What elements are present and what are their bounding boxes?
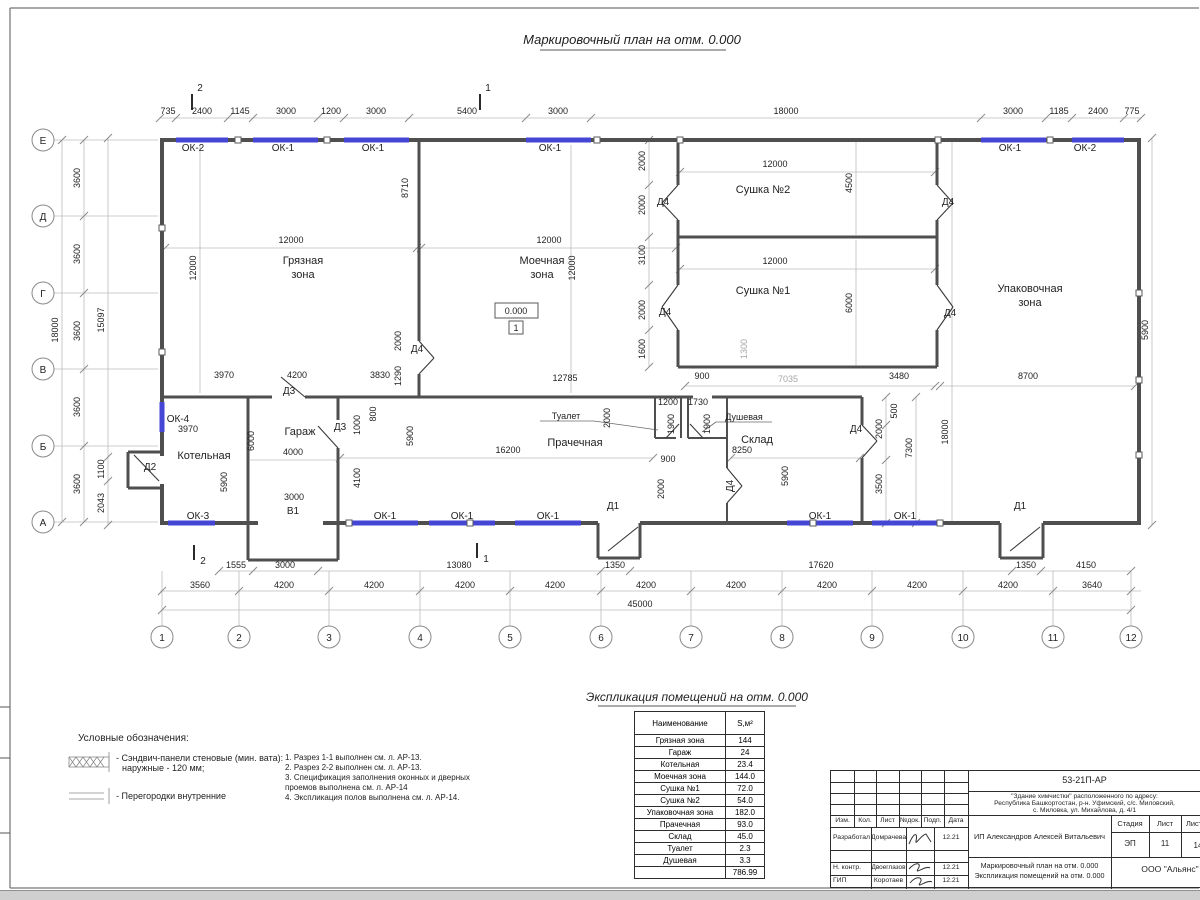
svg-text:4200: 4200	[455, 580, 475, 590]
partition-swatch	[69, 788, 109, 804]
svg-text:1: 1	[513, 323, 518, 333]
svg-text:В1: В1	[287, 506, 300, 517]
svg-text:Д3: Д3	[283, 386, 296, 397]
svg-text:5400: 5400	[457, 106, 477, 116]
svg-text:Г: Г	[40, 289, 46, 300]
project-code: 53-21П-АР	[968, 775, 1200, 785]
svg-text:15097: 15097	[96, 307, 106, 332]
table-row: Туалет2.3	[635, 843, 765, 855]
svg-text:2000: 2000	[874, 419, 884, 439]
svg-text:5900: 5900	[1140, 320, 1150, 340]
svg-text:1000: 1000	[352, 415, 362, 435]
svg-text:1145: 1145	[230, 106, 249, 116]
svg-text:Д3: Д3	[334, 422, 347, 433]
svg-text:4200: 4200	[907, 580, 927, 590]
svg-text:2043: 2043	[96, 493, 106, 513]
svg-text:16200: 16200	[495, 445, 520, 455]
svg-text:500: 500	[889, 403, 899, 418]
org-name: ООО "Альянс"	[1111, 864, 1200, 874]
section-1-bottom: 1	[483, 554, 489, 565]
svg-text:12: 12	[1125, 633, 1137, 644]
svg-text:1555: 1555	[226, 560, 246, 570]
svg-text:1185: 1185	[1049, 106, 1068, 116]
svg-text:3600: 3600	[72, 244, 82, 264]
project-address-2: Республика Башкортостан, р-н. Уфимский, …	[971, 800, 1198, 807]
svg-text:1. Разрез 1-1 выполнен см. л.: 1. Разрез 1-1 выполнен см. л. АР-13.	[285, 753, 422, 762]
svg-text:3970: 3970	[214, 370, 234, 380]
svg-text:17620: 17620	[808, 560, 833, 570]
svg-text:ОК-1: ОК-1	[537, 511, 560, 522]
svg-text:3: 3	[326, 633, 332, 644]
table-row: Грязная зона144	[635, 735, 765, 747]
room-shower: Душевая	[725, 412, 763, 422]
svg-text:3830: 3830	[370, 370, 390, 380]
section-2-bottom: 2	[200, 556, 206, 567]
svg-text:Д2: Д2	[144, 462, 157, 473]
svg-text:3600: 3600	[72, 168, 82, 188]
svg-text:2000: 2000	[637, 300, 647, 320]
svg-text:1900: 1900	[666, 414, 676, 434]
svg-text:5900: 5900	[405, 426, 415, 446]
table-row: Моечная зона144.0	[635, 771, 765, 783]
table-row: Упаковочная зона182.0	[635, 807, 765, 819]
dims-bottom: 1555 3000 13080 1350 17620 1350 4150 356…	[190, 560, 1102, 609]
table-row: Сушка №172.0	[635, 783, 765, 795]
svg-text:4. Экспликация полов выполнена: 4. Экспликация полов выполнена см. л. АР…	[285, 793, 459, 802]
exterior-walls	[160, 138, 1141, 525]
svg-text:9: 9	[869, 633, 875, 644]
project-address-3: с. Миловка, ул. Михайлова, д. 4/1	[971, 807, 1198, 814]
name-ncontrol: Двоеглазов	[871, 864, 906, 871]
svg-text:0.000: 0.000	[505, 306, 528, 316]
signature-2	[906, 859, 934, 889]
svg-text:12000: 12000	[567, 255, 577, 280]
svg-text:8: 8	[779, 633, 785, 644]
room-boiler: Котельная	[177, 450, 230, 462]
svg-text:18000: 18000	[773, 106, 798, 116]
svg-text:10: 10	[957, 633, 969, 644]
drawing-sheet: Маркировочный план на отм. 0.000	[0, 0, 1200, 900]
svg-text:3600: 3600	[72, 397, 82, 417]
room-wash-zone: Моечная	[519, 255, 564, 267]
svg-text:ОК-1: ОК-1	[999, 143, 1022, 154]
svg-text:12000: 12000	[536, 235, 561, 245]
window-label-ok4: ОК-4	[167, 414, 190, 425]
svg-text:1730: 1730	[688, 397, 708, 407]
svg-text:А: А	[40, 518, 47, 529]
signature-1	[906, 829, 934, 849]
svg-text:Д4: Д4	[657, 197, 670, 208]
svg-text:3600: 3600	[72, 321, 82, 341]
svg-text:2: 2	[236, 633, 242, 644]
svg-text:4200: 4200	[287, 370, 307, 380]
svg-text:775: 775	[1124, 106, 1139, 116]
svg-text:- Сэндвич-панели стеновые (мин: - Сэндвич-панели стеновые (мин. вата):	[116, 753, 283, 763]
svg-text:7: 7	[688, 633, 694, 644]
svg-text:наружные - 120 мм;: наружные - 120 мм;	[122, 763, 204, 773]
svg-text:1200: 1200	[321, 106, 341, 116]
svg-text:4200: 4200	[545, 580, 565, 590]
svg-text:3000: 3000	[276, 106, 296, 116]
doc-title-1: Маркировочный план на отм. 0.000	[968, 861, 1111, 870]
project-address-1: "Здание химчистки" расположенного по адр…	[971, 793, 1198, 800]
svg-text:Д: Д	[40, 212, 47, 223]
svg-text:4000: 4000	[283, 447, 303, 457]
room-packing-zone: Упаковочная	[997, 283, 1062, 295]
room-laundry: Прачечная	[547, 437, 602, 449]
section-2-top: 2	[197, 83, 203, 94]
explication-table: Наименование S,м² Грязная зона144 Гараж2…	[634, 711, 765, 879]
room-dirty-zone: Грязная	[283, 255, 324, 267]
svg-text:8250: 8250	[732, 445, 752, 455]
svg-text:1900: 1900	[702, 414, 712, 434]
door-labels: Д4 Д4 Д4 Д4 Д4 Д4 Д4 Д3 Д3 Д2 Д1 Д1 В1	[144, 197, 1027, 517]
svg-text:Д1: Д1	[607, 501, 620, 512]
svg-text:6: 6	[598, 633, 604, 644]
svg-text:8700: 8700	[1018, 371, 1038, 381]
svg-text:4200: 4200	[274, 580, 294, 590]
room-garage: Гараж	[284, 426, 316, 438]
svg-text:800: 800	[368, 406, 378, 421]
svg-text:5900: 5900	[219, 472, 229, 492]
col-header-name: Наименование	[635, 712, 726, 735]
svg-text:3000: 3000	[366, 106, 386, 116]
room-storage: Склад	[741, 434, 773, 446]
svg-text:ОК-1: ОК-1	[894, 511, 917, 522]
svg-text:ОК-2: ОК-2	[1074, 143, 1097, 154]
svg-text:1100: 1100	[96, 459, 106, 478]
role-gip: ГИП	[833, 877, 846, 884]
svg-text:1290: 1290	[393, 366, 403, 386]
svg-text:3000: 3000	[548, 106, 568, 116]
svg-text:4200: 4200	[726, 580, 746, 590]
room-drying-2: Сушка №2	[736, 184, 790, 196]
svg-text:Б: Б	[40, 442, 47, 453]
svg-text:3000: 3000	[1003, 106, 1023, 116]
dim-ticks	[58, 114, 1156, 614]
floor-plan-svg: Маркировочный план на отм. 0.000	[0, 0, 1200, 900]
client-name: ИП Александров Алексей Витальевич	[968, 832, 1111, 841]
sheet-value: 11	[1149, 839, 1181, 848]
svg-text:2000: 2000	[637, 151, 647, 171]
svg-text:2000: 2000	[637, 195, 647, 215]
svg-text:735: 735	[160, 106, 175, 116]
stage-value: ЭП	[1111, 839, 1149, 848]
svg-text:В: В	[40, 365, 47, 376]
svg-text:1350: 1350	[1016, 560, 1036, 570]
svg-text:13080: 13080	[446, 560, 471, 570]
svg-text:3. Спецификация заполнения око: 3. Спецификация заполнения оконных и две…	[285, 773, 470, 782]
svg-text:45000: 45000	[627, 599, 652, 609]
svg-text:4500: 4500	[844, 173, 854, 193]
svg-text:ОК-1: ОК-1	[362, 143, 385, 154]
svg-text:4: 4	[417, 633, 423, 644]
svg-text:Д4: Д4	[411, 344, 424, 355]
table-row: Душевая3.3	[635, 855, 765, 867]
sheets-value: 14	[1181, 841, 1200, 850]
table-total-row: 786.99	[635, 867, 765, 879]
svg-text:7035: 7035	[778, 374, 798, 384]
svg-text:18000: 18000	[50, 317, 60, 342]
axis-bubbles	[32, 129, 1142, 648]
svg-text:1600: 1600	[637, 339, 647, 359]
svg-text:ОК-1: ОК-1	[539, 143, 562, 154]
svg-text:3100: 3100	[637, 245, 647, 265]
svg-text:1: 1	[159, 633, 165, 644]
elevation-mark: 0.000 1	[495, 303, 538, 334]
svg-text:5900: 5900	[780, 466, 790, 486]
svg-text:2000: 2000	[656, 479, 666, 499]
svg-text:11: 11	[1048, 633, 1059, 644]
section-1-top: 1	[485, 83, 491, 94]
svg-text:18000: 18000	[940, 419, 950, 444]
svg-text:6000: 6000	[246, 431, 256, 451]
svg-text:6000: 6000	[844, 293, 854, 313]
legend-title: Условные обозначения:	[78, 732, 189, 744]
svg-text:4200: 4200	[998, 580, 1018, 590]
svg-text:3560: 3560	[190, 580, 210, 590]
svg-text:3500: 3500	[874, 474, 884, 494]
svg-text:12000: 12000	[762, 159, 787, 169]
svg-text:2000: 2000	[602, 408, 612, 428]
svg-text:12000: 12000	[278, 235, 303, 245]
svg-text:2400: 2400	[1088, 106, 1108, 116]
notes: 1. Разрез 1-1 выполнен см. л. АР-13. 2. …	[285, 753, 470, 802]
svg-text:- Перегородки внутренние: - Перегородки внутренние	[116, 791, 226, 801]
svg-text:1350: 1350	[605, 560, 625, 570]
svg-text:ОК-1: ОК-1	[809, 511, 832, 522]
svg-text:4200: 4200	[636, 580, 656, 590]
svg-text:3970: 3970	[178, 424, 198, 434]
window-label-ok2: ОК-2	[182, 143, 205, 154]
svg-text:3600: 3600	[72, 474, 82, 494]
room-toilet: Туалет	[552, 411, 580, 421]
name-gip: Коротаев	[871, 877, 906, 884]
svg-text:2400: 2400	[192, 106, 212, 116]
sandwich-panel-swatch	[69, 752, 109, 772]
svg-text:зона: зона	[1018, 297, 1042, 309]
table-row: Гараж24	[635, 747, 765, 759]
svg-text:Д4: Д4	[942, 197, 955, 208]
svg-text:Д1: Д1	[1014, 501, 1027, 512]
axis-labels: Е Д Г В Б А 1 2 3 4 5 6 7 8 9 10 11 12	[40, 136, 1137, 644]
svg-text:Д4: Д4	[850, 424, 863, 435]
svg-text:зона: зона	[530, 269, 554, 281]
dims-plan: 12000 12000 12000 12000 8710 12000 4500 …	[178, 151, 1038, 502]
role-developed: Разработал	[833, 834, 870, 841]
title-block: 53-21П-АР "Здание химчистки" расположенн…	[830, 770, 1200, 888]
svg-text:2000: 2000	[393, 331, 403, 351]
legend: Условные обозначения: - Сэндвич-панели с…	[69, 732, 283, 804]
svg-text:5: 5	[507, 633, 513, 644]
table-row: Склад45.0	[635, 831, 765, 843]
svg-text:Д4: Д4	[944, 308, 957, 319]
room-drying-1: Сушка №1	[736, 285, 790, 297]
svg-text:4200: 4200	[817, 580, 837, 590]
dims-top: 735 2400 1145 3000 1200 3000 5400 3000 1…	[160, 106, 1139, 116]
svg-text:проемов выполнена см. л. АР-14: проемов выполнена см. л. АР-14	[285, 783, 408, 792]
svg-text:1200: 1200	[658, 397, 678, 407]
svg-text:зона: зона	[291, 269, 315, 281]
column-markers	[159, 137, 1142, 526]
svg-text:4150: 4150	[1076, 560, 1096, 570]
col-header-area: S,м²	[726, 712, 765, 735]
room-labels: Грязная зона Моечная зона Сушка №2 Сушка…	[177, 184, 1062, 462]
table-row: Прачечная93.0	[635, 819, 765, 831]
svg-text:900: 900	[694, 371, 709, 381]
role-ncontrol: Н. контр.	[833, 864, 861, 871]
svg-text:3000: 3000	[284, 492, 304, 502]
svg-text:1300: 1300	[739, 339, 749, 359]
svg-text:4100: 4100	[352, 468, 362, 488]
svg-text:ОК-1: ОК-1	[374, 511, 397, 522]
svg-text:8710: 8710	[400, 178, 410, 198]
svg-text:2. Разрез 2-2 выполнен см. л.: 2. Разрез 2-2 выполнен см. л. АР-13.	[285, 763, 422, 772]
table-row: Сушка №254.0	[635, 795, 765, 807]
svg-text:Д4: Д4	[725, 479, 736, 492]
svg-text:12000: 12000	[762, 256, 787, 266]
bottom-strip	[0, 890, 1200, 900]
interior-walls	[128, 140, 1043, 560]
svg-text:ОК-1: ОК-1	[451, 511, 474, 522]
section-marks: 2 1 2 1	[192, 83, 491, 567]
svg-text:3640: 3640	[1082, 580, 1102, 590]
svg-text:Е: Е	[40, 136, 47, 147]
svg-text:ОК-1: ОК-1	[272, 143, 295, 154]
svg-text:7300: 7300	[904, 438, 914, 458]
svg-text:3480: 3480	[889, 371, 909, 381]
svg-text:3000: 3000	[275, 560, 295, 570]
window-labels: ОК-2 ОК-1 ОК-1 ОК-1 ОК-1 ОК-2 ОК-3 ОК-1 …	[167, 143, 1097, 522]
doc-title-2: Экспликация помещений на отм. 0.000	[968, 871, 1111, 880]
svg-text:12000: 12000	[188, 255, 198, 280]
svg-text:4200: 4200	[364, 580, 384, 590]
name-developed: Домрачева	[871, 834, 906, 841]
table-title: Экспликация помещений на отм. 0.000	[586, 690, 808, 704]
page-title: Маркировочный план на отм. 0.000	[523, 32, 742, 47]
svg-text:900: 900	[660, 454, 675, 464]
window-label-ok3: ОК-3	[187, 511, 210, 522]
svg-text:Д4: Д4	[659, 307, 672, 318]
table-row: Котельная23.4	[635, 759, 765, 771]
svg-text:12785: 12785	[552, 373, 577, 383]
